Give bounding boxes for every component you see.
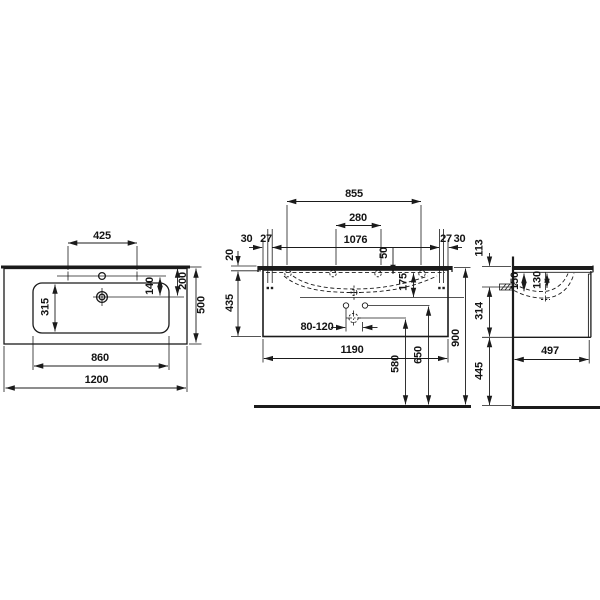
dim-tap-holes-outer-spacing: 855	[345, 188, 363, 200]
dim-side-to-fixing-right: 30	[454, 233, 466, 245]
side-hidden-lines	[514, 273, 574, 303]
tap-hole-icon	[419, 270, 425, 276]
washbasin-technical-drawing: 425 315 140 200 860 1200 500	[0, 0, 600, 600]
dim-outlet-to-cabinet-bottom: 314	[474, 301, 486, 320]
front-dimensions	[231, 202, 471, 405]
front-labels: 855 280 1076 30 27 27 30 20 50 175 435 8…	[224, 188, 465, 373]
dim-basin-inner-width: 860	[91, 352, 109, 364]
dim-fixing-holes-spacing: 1076	[344, 234, 368, 246]
dim-overall-depth: 500	[196, 296, 208, 314]
dim-bowl-depth-rear: 150	[509, 272, 521, 290]
dim-back-edge-to-drain: 200	[177, 272, 189, 290]
plan-view: 425 315 140 200 860 1200 500	[1, 230, 208, 392]
dim-drain-outlet-height: 580	[390, 355, 402, 373]
front-view: 855 280 1076 30 27 27 30 20 50 175 435 8…	[224, 188, 471, 407]
plan-outline	[1, 267, 190, 344]
vanity-cabinet	[263, 270, 448, 337]
fixing-hole	[271, 287, 273, 289]
technical-drawing-page: 425 315 140 200 860 1200 500	[0, 0, 600, 600]
dim-bowl-depth-front: 130	[532, 271, 544, 289]
tap-hole-icon	[375, 270, 381, 276]
dim-fixing-gap-left: 27	[260, 233, 272, 245]
dim-washbasin-thickness: 20	[224, 249, 236, 261]
dim-top-to-outlet: 113	[474, 239, 486, 256]
washbasin-top-slab	[513, 266, 593, 270]
dim-drain-offset-range: 80-120	[300, 321, 333, 333]
dim-tap-hole-spacing: 425	[93, 230, 111, 242]
fixing-hole	[267, 287, 269, 289]
tap-hole-icon	[285, 270, 291, 276]
tap-hole-icon	[330, 270, 336, 276]
side-view: 113 150 130 314 497 445	[474, 239, 600, 407]
dim-tap-to-drain: 140	[144, 277, 156, 295]
dim-cabinet-height: 435	[224, 294, 236, 312]
side-labels: 113 150 130 314 497 445	[474, 239, 559, 380]
dim-cabinet-width: 1190	[340, 344, 363, 356]
supply-connection-icon	[343, 303, 348, 308]
dim-overall-width: 1200	[85, 374, 109, 386]
dim-bowl-depth: 175	[398, 273, 410, 291]
dim-cabinet-bottom-to-floor: 445	[474, 362, 486, 380]
front-hidden-lines	[266, 270, 445, 300]
fixing-hole	[442, 287, 444, 289]
dim-basin-inner-depth: 315	[40, 298, 52, 316]
plan-labels: 425 315 140 200 860 1200 500	[40, 230, 208, 386]
dim-rim-depth: 50	[378, 247, 390, 259]
side-outline	[512, 257, 600, 408]
dim-fixing-gap-right: 27	[440, 233, 452, 245]
dim-supply-height: 650	[413, 346, 425, 364]
dim-cabinet-depth: 497	[541, 345, 559, 357]
supply-connection-icon	[362, 303, 367, 308]
dim-overall-height: 900	[450, 329, 462, 347]
dim-tap-holes-inner-spacing: 280	[349, 212, 367, 224]
dim-side-to-fixing-left: 30	[241, 233, 253, 245]
fixing-hole	[438, 287, 440, 289]
